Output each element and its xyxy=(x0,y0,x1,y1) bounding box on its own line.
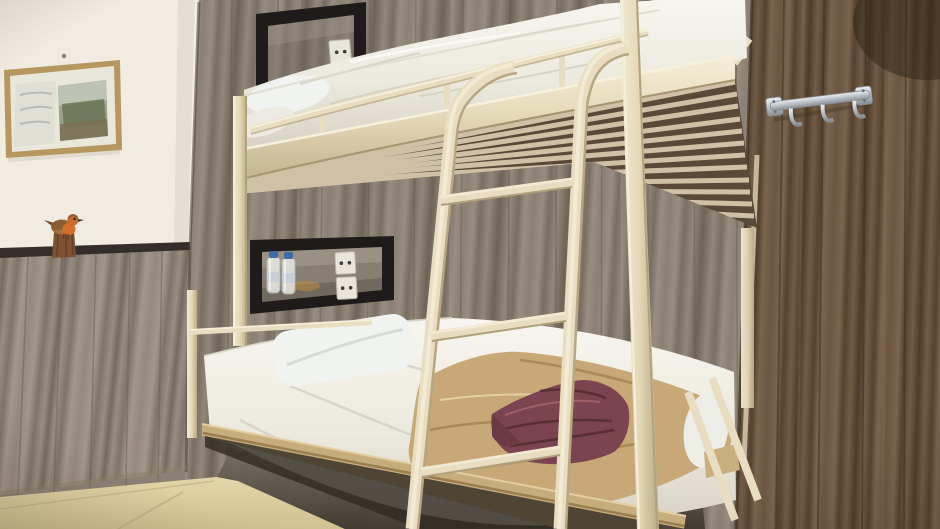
room-photo xyxy=(0,0,940,529)
room-photo-canvas xyxy=(0,0,940,529)
photo-vignette xyxy=(0,0,940,529)
